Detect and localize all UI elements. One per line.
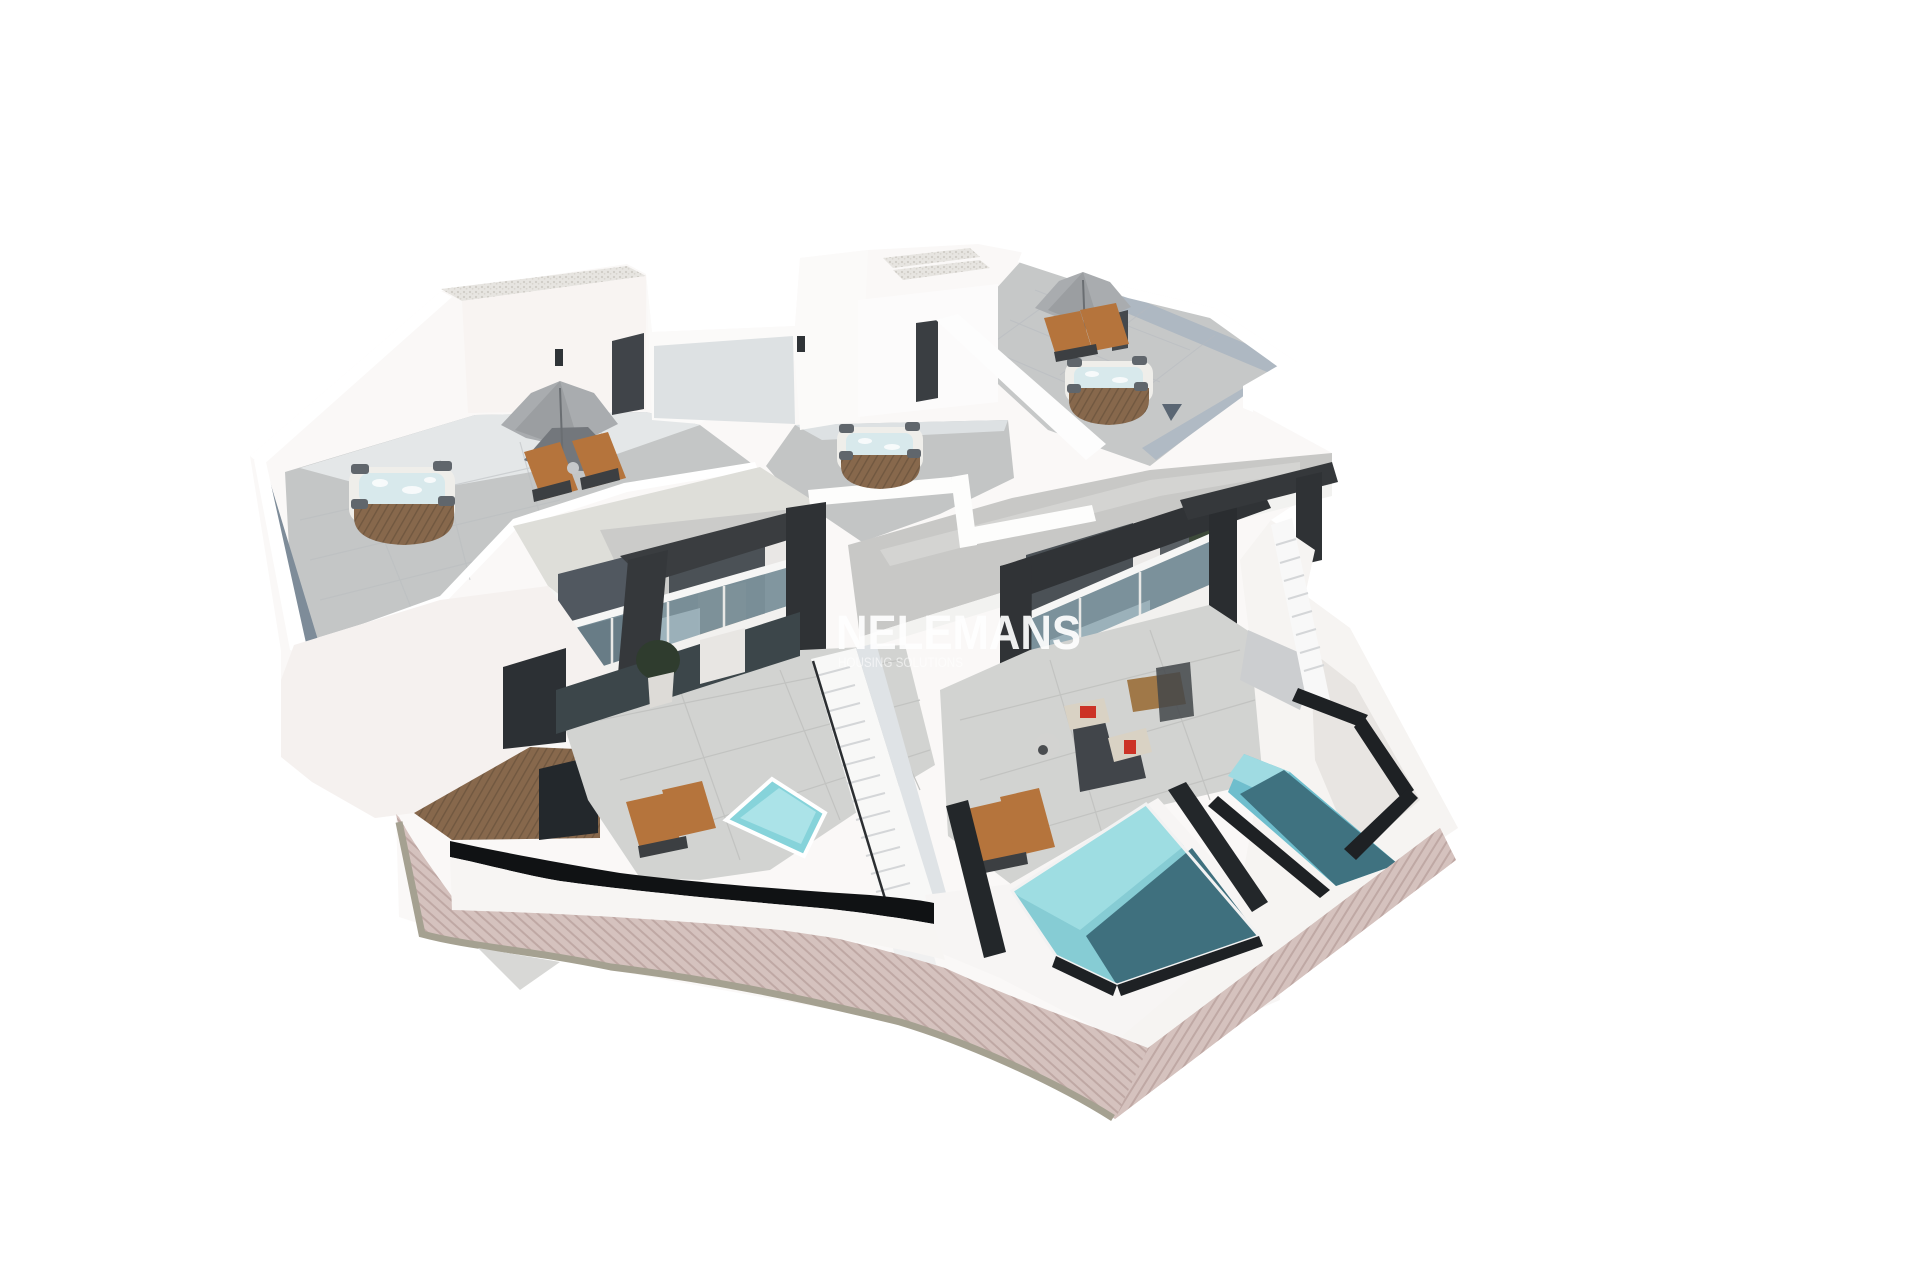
svg-text:HOUSING SOLUTIONS: HOUSING SOLUTIONS	[838, 655, 963, 670]
svg-text:NELEMANS: NELEMANS	[836, 607, 1081, 660]
